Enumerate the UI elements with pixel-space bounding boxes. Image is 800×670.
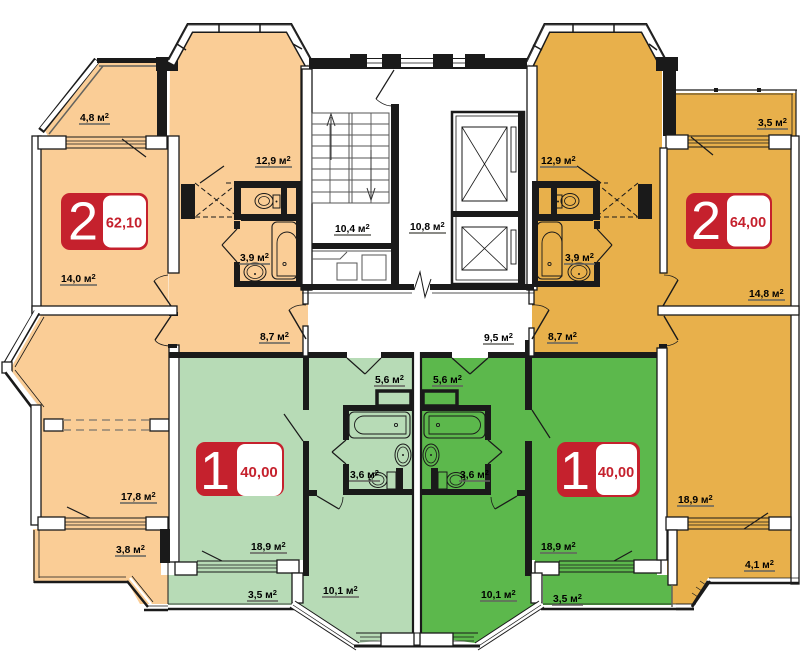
svg-text:5,6 м2: 5,6 м2 [375, 373, 404, 386]
svg-text:2: 2 [691, 191, 721, 251]
svg-text:3,6 м2: 3,6 м2 [350, 468, 379, 481]
svg-text:3,5 м2: 3,5 м2 [758, 116, 787, 129]
svg-text:1: 1 [560, 441, 590, 501]
svg-text:12,9 м2: 12,9 м2 [256, 154, 291, 167]
svg-text:17,8 м2: 17,8 м2 [121, 490, 156, 503]
svg-text:3,6 м2: 3,6 м2 [460, 468, 489, 481]
svg-text:9,5 м2: 9,5 м2 [484, 331, 513, 344]
svg-text:4,1 м2: 4,1 м2 [745, 558, 774, 571]
svg-text:5,6 м2: 5,6 м2 [433, 373, 462, 386]
svg-text:10,1 м2: 10,1 м2 [323, 584, 358, 597]
svg-text:40,00: 40,00 [240, 464, 278, 481]
svg-text:18,9 м2: 18,9 м2 [251, 540, 286, 553]
svg-text:12,9 м2: 12,9 м2 [541, 154, 576, 167]
svg-text:3,8 м2: 3,8 м2 [116, 543, 145, 556]
svg-text:3,9 м2: 3,9 м2 [240, 251, 269, 264]
svg-text:10,1 м2: 10,1 м2 [481, 588, 516, 601]
svg-text:40,00: 40,00 [598, 465, 634, 481]
svg-text:10,8 м2: 10,8 м2 [410, 220, 445, 233]
svg-text:64,00: 64,00 [730, 215, 766, 231]
svg-text:3,5 м2: 3,5 м2 [553, 592, 582, 605]
svg-text:4,8 м2: 4,8 м2 [80, 111, 109, 124]
svg-text:10,4 м2: 10,4 м2 [335, 222, 370, 235]
svg-text:3,5 м2: 3,5 м2 [248, 588, 277, 601]
svg-text:8,7 м2: 8,7 м2 [260, 330, 289, 343]
svg-text:2: 2 [68, 192, 98, 252]
svg-text:18,9 м2: 18,9 м2 [678, 493, 713, 506]
svg-text:62,10: 62,10 [106, 216, 142, 232]
svg-text:18,9 м2: 18,9 м2 [541, 540, 576, 553]
svg-text:3,9 м2: 3,9 м2 [565, 251, 594, 264]
svg-text:14,8 м2: 14,8 м2 [749, 287, 784, 300]
svg-text:1: 1 [200, 441, 230, 501]
svg-text:14,0 м2: 14,0 м2 [61, 272, 96, 285]
svg-text:8,7 м2: 8,7 м2 [548, 330, 577, 343]
